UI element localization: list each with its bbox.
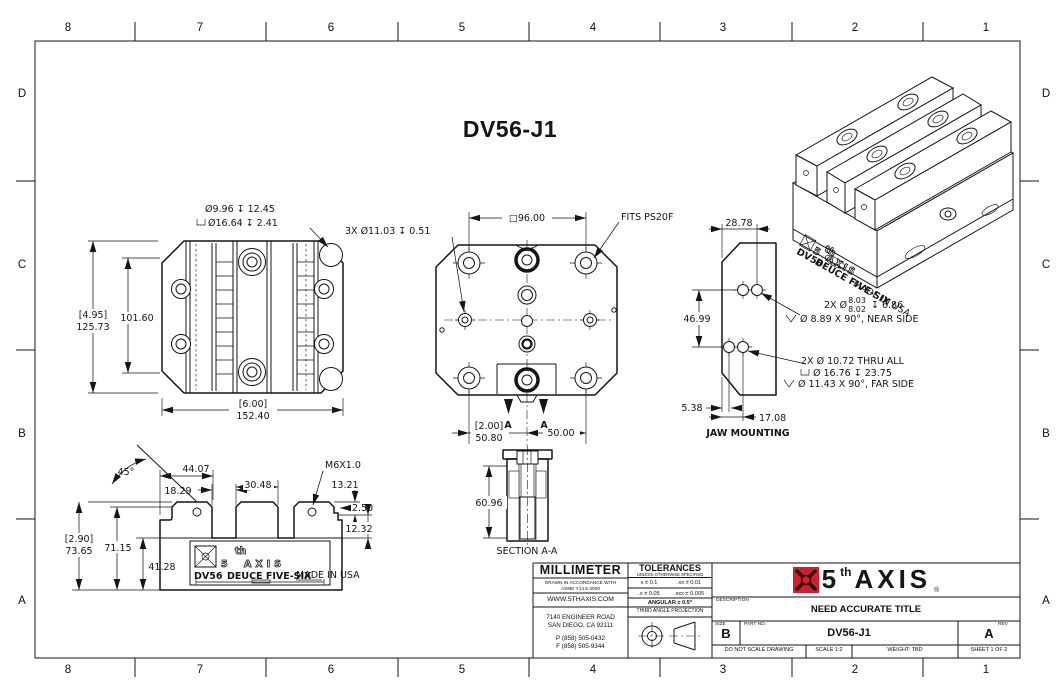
description-label: DESCRIPTION	[716, 598, 749, 603]
dim-front-height-ref: [4.95]	[79, 310, 108, 321]
dim-jaw-width: 28.78	[725, 218, 752, 229]
section-view: 60.96 SECTION A-A	[471, 446, 558, 557]
brand-sup: th	[840, 566, 851, 578]
dim-front-width-ref: [6.00]	[239, 399, 268, 410]
no-scale-note: DO NOT SCALE DRAWING	[712, 648, 806, 654]
units-label: MILLIMETER	[533, 564, 628, 578]
isometric-view: 5 th AXIS DV56 DEUCE FIVE-SIX MADE IN US…	[793, 77, 1013, 320]
brand-logo: 5thAXIS ®	[712, 563, 1020, 596]
description-value: NEED ACCURATE TITLE	[712, 605, 1020, 615]
dim-side-height-ref: [2.90]	[65, 534, 94, 545]
zone-col-8-bottom: 8	[58, 664, 78, 676]
jaw-note2-csk: Ø 11.43 X 90°, FAR SIDE	[798, 379, 914, 390]
zone-col-3-bottom: 3	[713, 664, 733, 676]
address-line2: SAN DIEGO, CA 92111	[533, 623, 628, 630]
zone-row-a-left: A	[12, 595, 32, 607]
counterbore-icon	[801, 369, 809, 375]
dim-top-spacing: 50.00	[547, 428, 574, 439]
section-arrow-icon	[504, 399, 548, 414]
website: WWW.5THAXIS.COM	[533, 596, 628, 603]
section-letter-left: A	[504, 420, 512, 431]
fits-label: FITS PS20F	[621, 212, 673, 223]
zone-col-7-top: 7	[190, 22, 210, 34]
zone-row-a-right: A	[1036, 595, 1056, 607]
countersink-icon	[786, 315, 796, 322]
dim-side-base-height: 41.28	[148, 562, 175, 573]
third-angle-projection-icon	[638, 622, 700, 650]
dim-side-jaw-width: 30.48	[244, 480, 271, 491]
jaw-mounting-label: JAW MOUNTING	[705, 428, 789, 439]
part-no-value: DV56-J1	[740, 628, 958, 640]
tolerance-xx: .xx ± 0.01	[668, 580, 710, 586]
dim-top-offset: 50.80	[475, 433, 502, 444]
tolerance-xxx: .xxx ± 0.005	[668, 591, 710, 597]
top-view: □96.00 3X Ø11.03 ↧ 0.51 FITS PS20F [2.00…	[345, 211, 673, 446]
tolerance-x: x ± 0.1	[630, 580, 668, 586]
zone-row-c-left: C	[12, 259, 32, 271]
sheet-number: SHEET 1 OF 2	[958, 648, 1020, 654]
zone-col-2-bottom: 2	[845, 664, 865, 676]
top-cbore-callout: 3X Ø11.03 ↧ 0.51	[345, 226, 430, 237]
jaw-note1-prefix: 2X Ø	[824, 300, 847, 311]
dim-side-step-height: 13.21	[331, 480, 358, 491]
brand-name: AXIS	[854, 564, 931, 595]
zone-row-c-right: C	[1036, 259, 1056, 271]
jaw-note2-cbore: Ø 16.76 ↧ 23.75	[813, 368, 892, 379]
scale-value: SCALE 1:2	[806, 648, 852, 654]
zone-col-5-bottom: 5	[452, 664, 472, 676]
dim-top-offset-ref: [2.00]	[475, 421, 504, 432]
tolerances-sub: UNLESS OTHERWISE SPECIFIED	[628, 573, 712, 578]
size-value: B	[712, 627, 740, 641]
jaw-note2-thru: 2X Ø 10.72 THRU ALL	[801, 356, 905, 367]
plaque-brand-sup: th	[235, 546, 247, 557]
brand-registered-icon: ®	[934, 587, 939, 594]
front-cbore-callout-line1: Ø9.96 ↧ 12.45	[205, 204, 275, 215]
dim-front-height: 125.73	[76, 322, 109, 333]
zone-col-5-top: 5	[452, 22, 472, 34]
weight-value: WEIGHT: TBD	[852, 648, 958, 654]
dim-front-width: 152.40	[236, 411, 269, 422]
zone-row-b-right: B	[1036, 428, 1056, 440]
tolerance-x2: .x ± 0.05	[630, 591, 668, 597]
countersink-icon	[784, 380, 794, 387]
dim-side-jaw-to-slot: 44.07	[182, 464, 209, 475]
rev-value: A	[958, 627, 1020, 641]
drawing-sheet: [4.95] 125.73 101.60 [6.00] 152.40 Ø9.96…	[0, 0, 1056, 700]
dim-side-ledge-height: 12.32	[345, 524, 372, 535]
zone-col-6-bottom: 6	[321, 664, 341, 676]
section-label: SECTION A-A	[497, 546, 558, 557]
brand-num: 5	[822, 564, 837, 595]
zone-row-d-right: D	[1036, 88, 1056, 100]
fax: F (858) 505-9344	[533, 644, 628, 651]
zone-col-1-top: 1	[976, 22, 996, 34]
plaque-brand-num: 5	[221, 559, 228, 570]
zone-col-8-top: 8	[58, 22, 78, 34]
zone-col-7-bottom: 7	[190, 664, 210, 676]
dim-section-depth: 60.96	[475, 498, 502, 509]
section-letter-right: A	[540, 420, 548, 431]
zone-row-b-left: B	[12, 428, 32, 440]
zone-col-1-bottom: 1	[976, 664, 996, 676]
dim-top-bolt-pattern: □96.00	[509, 213, 545, 224]
counterbore-icon	[197, 219, 205, 225]
front-view: [4.95] 125.73 101.60 [6.00] 152.40 Ø9.96…	[74, 204, 343, 422]
dim-jaw-hole-offset: 17.08	[759, 413, 786, 424]
part-no-label: PART NO.	[744, 622, 766, 627]
drawing-title: DV56-J1	[400, 116, 620, 143]
accordance-line2: ASME Y14.5-2009	[533, 586, 628, 591]
dim-side-angle: 45°	[118, 467, 135, 478]
address-line1: 7140 ENGINEER ROAD	[533, 615, 628, 622]
accordance-line1: DRAWN IN ACCORDANCE WITH	[533, 580, 628, 585]
side-elevation-view: 5 th AXIS DV56 DEUCE FIVE-SIX MADE IN US…	[62, 445, 376, 590]
dim-side-body-height: 71.15	[104, 543, 131, 554]
zone-row-d-left: D	[12, 88, 32, 100]
zone-col-3-top: 3	[713, 22, 733, 34]
plaque-origin: MADE IN USA	[296, 570, 360, 581]
zone-col-4-top: 4	[583, 22, 603, 34]
dim-side-thread: M6X1.0	[325, 460, 361, 471]
zone-col-2-top: 2	[845, 22, 865, 34]
phone: P (858) 505-0432	[533, 636, 628, 643]
plaque-model: DV56	[194, 571, 223, 582]
jaw-note1-upper: 8.03	[848, 296, 866, 305]
dim-jaw-edge-offset: 5.38	[681, 403, 702, 414]
dim-side-step-depth: 2.50	[352, 503, 373, 514]
projection-label: THIRD ANGLE PROJECTION	[628, 609, 712, 614]
front-cbore-callout-line2: Ø16.64 ↧ 2.41	[208, 218, 278, 229]
dim-side-height: 73.65	[65, 546, 92, 557]
zone-col-4-bottom: 4	[583, 664, 603, 676]
tolerance-angular: ANGULAR ± 0.5°	[628, 600, 712, 606]
brand-logo-icon	[793, 567, 819, 593]
zone-col-6-top: 6	[321, 22, 341, 34]
jaw-note1-lower: 8.02	[848, 305, 866, 314]
dim-jaw-vertical-spacing: 46.99	[683, 314, 710, 325]
dim-front-hole-spacing: 101.60	[120, 313, 153, 324]
dim-side-slot-width: 18.29	[164, 486, 191, 497]
plaque-brand-name: AXIS	[244, 559, 285, 570]
